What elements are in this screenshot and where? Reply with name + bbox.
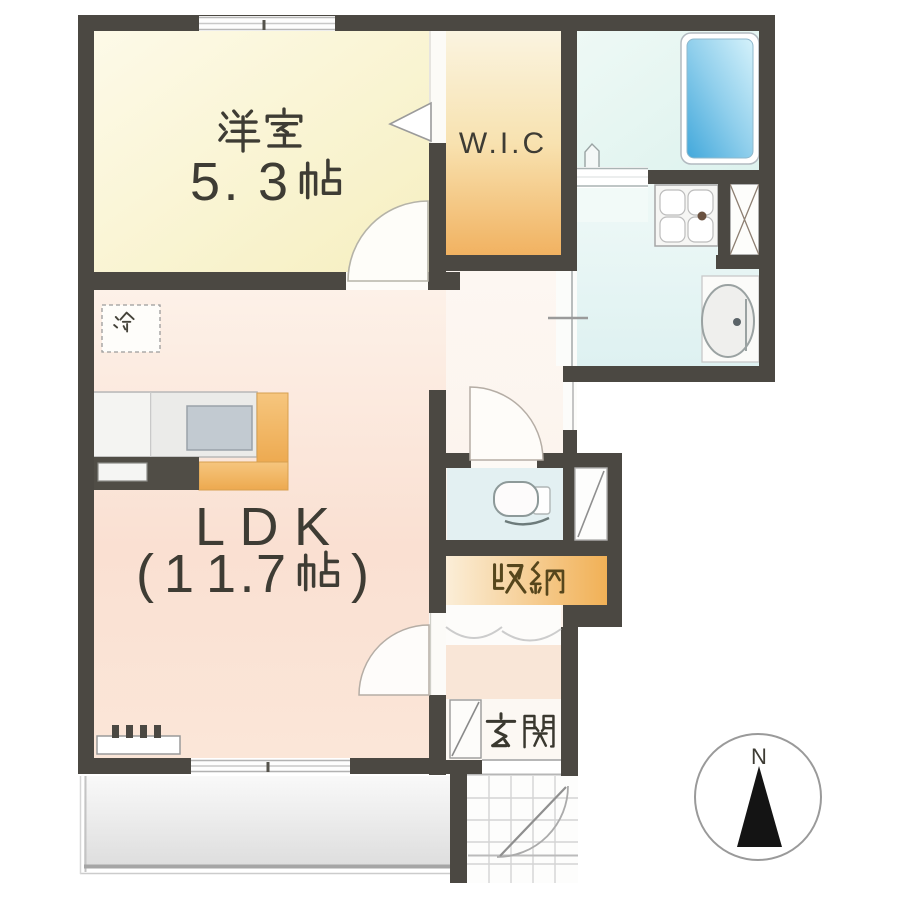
svg-text:W.I.C: W.I.C <box>459 127 547 160</box>
svg-text:1: 1 <box>164 544 194 604</box>
svg-text:(: ( <box>136 544 154 604</box>
svg-text:.: . <box>223 152 238 212</box>
svg-text:.: . <box>239 544 254 604</box>
svg-text:5: 5 <box>190 152 220 212</box>
svg-text:1: 1 <box>206 544 236 604</box>
svg-text:N: N <box>751 744 767 769</box>
svg-text:): ) <box>351 544 369 604</box>
svg-text:3: 3 <box>258 152 288 212</box>
svg-text:7: 7 <box>256 544 286 604</box>
svg-text:K: K <box>294 497 330 557</box>
